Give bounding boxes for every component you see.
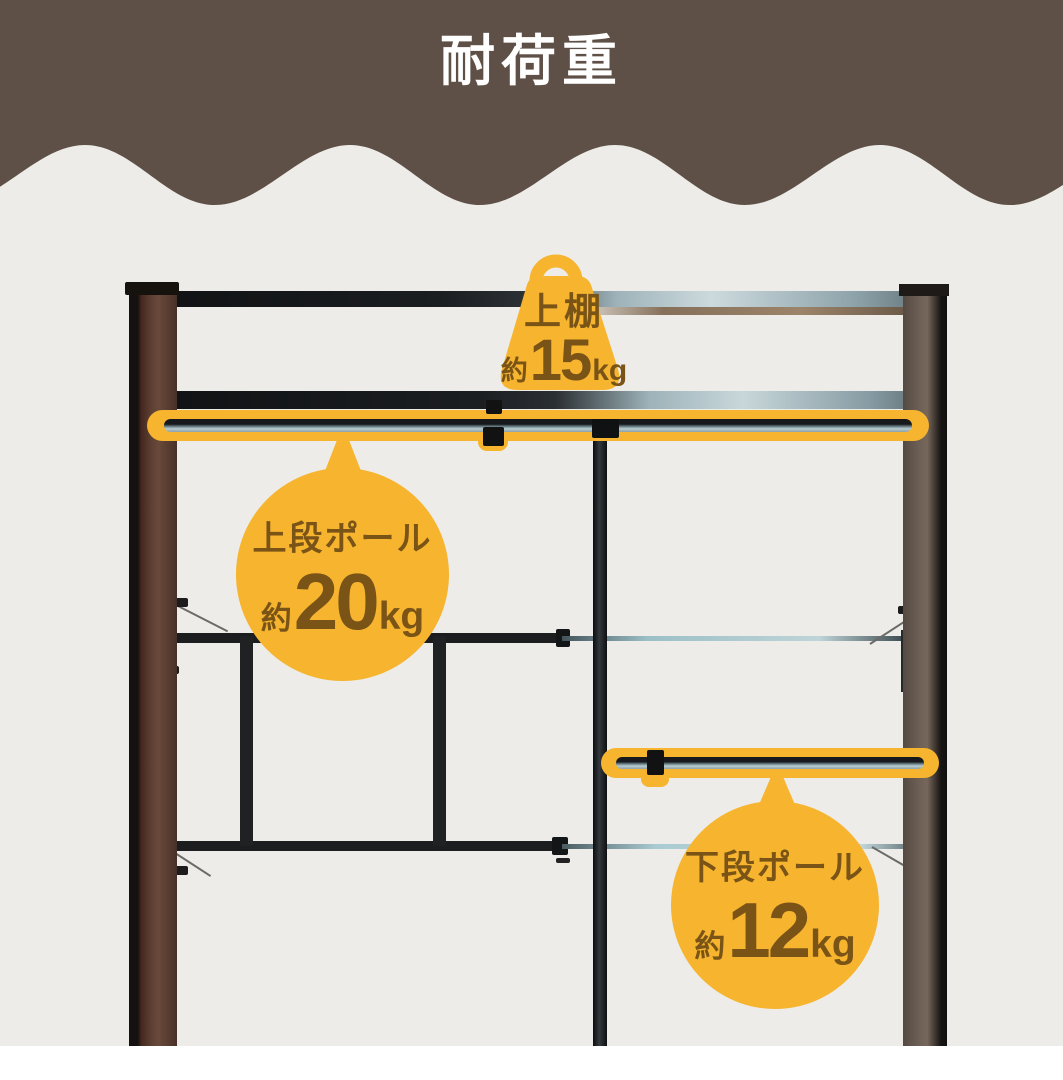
lower-pole-badge: 下段ポール 約 12 kg (671, 801, 879, 1009)
badge-prefix: 約 (261, 603, 292, 634)
extension-frame-upright-2 (433, 636, 446, 846)
badge-label: 上棚 (524, 293, 604, 330)
top-shelf-badge: 上棚 約 15 kg (489, 243, 639, 395)
badge-prefix: 約 (694, 931, 725, 962)
badge-value: 20 (294, 562, 377, 642)
badge-label: 下段ポール (685, 851, 865, 885)
page-title: 耐荷重 (0, 34, 1063, 89)
upper-hanger-pole (164, 419, 912, 432)
badge-label: 上段ポール (253, 522, 433, 556)
badge-unit: kg (379, 597, 425, 636)
badge-value: 15 (530, 332, 591, 390)
right-panel-top-cap (899, 284, 949, 296)
badge-unit: kg (810, 925, 856, 964)
badge-weight: 約 12 kg (694, 891, 855, 969)
left-wood-panel (129, 282, 177, 1046)
upper-pole-center-clamp (592, 419, 619, 438)
lower-crossbar-tab (556, 858, 570, 863)
badge-weight: 約 15 kg (501, 332, 628, 390)
upper-pole-clamp (483, 427, 504, 446)
badge-unit: kg (592, 356, 627, 386)
middle-crossbar-right (562, 636, 905, 641)
lower-crossbar-left (152, 841, 564, 851)
extension-frame-upright-1 (240, 636, 253, 846)
badge-value: 12 (727, 891, 808, 969)
badge-prefix: 約 (501, 358, 528, 385)
upper-pole-clamp (486, 400, 502, 414)
badge-weight: 約 20 kg (261, 562, 425, 642)
infographic-load-capacity: 上棚 約 15 kg 上段ポール 約 20 kg 下段ポール 約 12 kg 耐… (0, 0, 1063, 1080)
lower-pole-clamp (647, 750, 664, 775)
right-wood-panel (903, 284, 947, 1046)
left-panel-top-cap (125, 282, 179, 295)
center-upright-pole (593, 420, 607, 1046)
upper-pole-badge: 上段ポール 約 20 kg (236, 468, 449, 681)
